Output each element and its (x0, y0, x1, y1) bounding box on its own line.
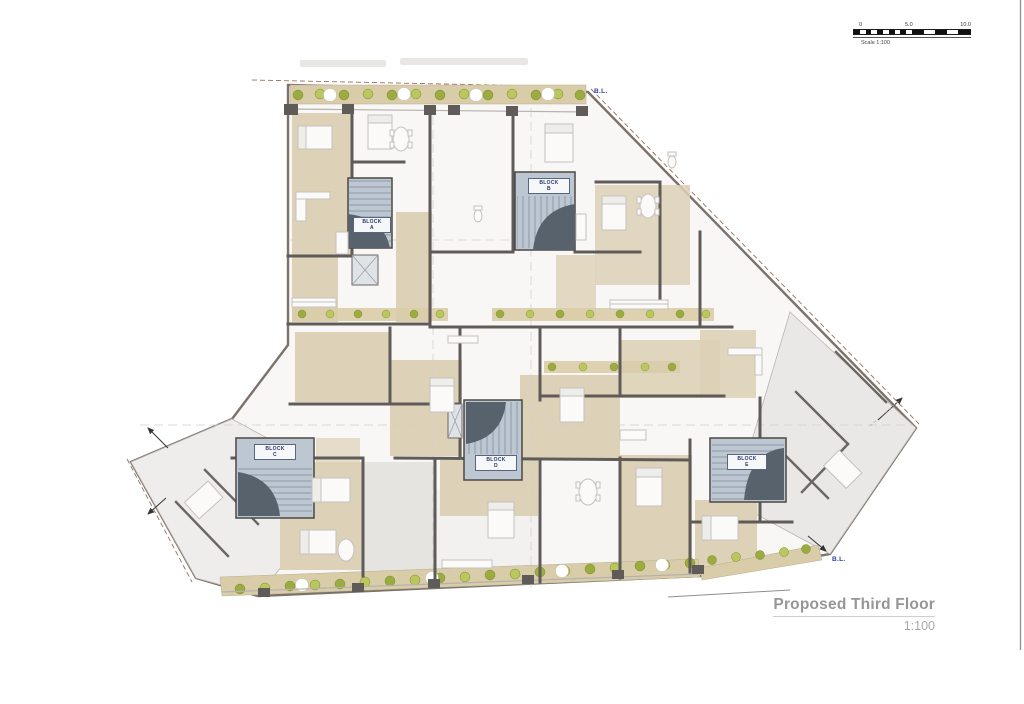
bed (560, 388, 584, 422)
kitchen-counter (610, 300, 668, 309)
scale-tick-mid: 5.0 (905, 22, 913, 28)
bed (702, 516, 738, 540)
faded-annotation (300, 58, 528, 67)
scale-bar: 0 5.0 10.0 Scale 1:100 (853, 22, 971, 46)
block-b-label: BLOCKB (528, 178, 570, 194)
scale-bar-segments (853, 29, 971, 35)
scale-tick-end: 10.0 (960, 22, 971, 28)
toilet (474, 206, 482, 222)
dining-table (637, 194, 659, 218)
bed (300, 530, 336, 554)
drawing-title: Proposed Third Floor (773, 596, 935, 617)
bed (545, 124, 573, 162)
block-d-label: BLOCKD (475, 455, 517, 471)
sofa (448, 336, 478, 343)
drawing-sheet: BLOCKA BLOCKB BLOCKC BLOCKD BLOCKE B.L. … (0, 0, 1024, 704)
wardrobe (336, 232, 348, 254)
bed (368, 115, 392, 149)
kitchen-counter (442, 560, 492, 568)
bed (488, 502, 514, 538)
block-a-label: BLOCKA (353, 217, 391, 233)
bed (298, 126, 332, 149)
wardrobe (576, 214, 586, 240)
scale-bar-labels: 0 5.0 10.0 (853, 22, 971, 29)
drawing-scale: 1:100 (735, 619, 935, 633)
dining-table (390, 127, 412, 151)
dining-table (576, 479, 600, 505)
boundary-line-label-bottom: B.L. (832, 556, 845, 563)
bed (602, 196, 626, 230)
bed (430, 378, 454, 412)
title-block: Proposed Third Floor 1:100 (735, 596, 935, 633)
block-e-label: BLOCKE (727, 454, 767, 470)
boundary-line-label-top: B.L. (594, 88, 607, 95)
section-arrow-icon (148, 428, 168, 448)
block-c-label: BLOCKC (254, 444, 296, 460)
toilet (668, 152, 676, 168)
kitchen-counter (292, 298, 336, 307)
scale-bar-caption: Scale 1:100 (861, 40, 971, 46)
dining-table (338, 539, 354, 561)
wardrobe (620, 430, 646, 440)
bed (636, 468, 662, 506)
scale-tick-0: 0 (859, 22, 862, 28)
bed (312, 478, 350, 502)
stair-block-e (710, 438, 786, 502)
